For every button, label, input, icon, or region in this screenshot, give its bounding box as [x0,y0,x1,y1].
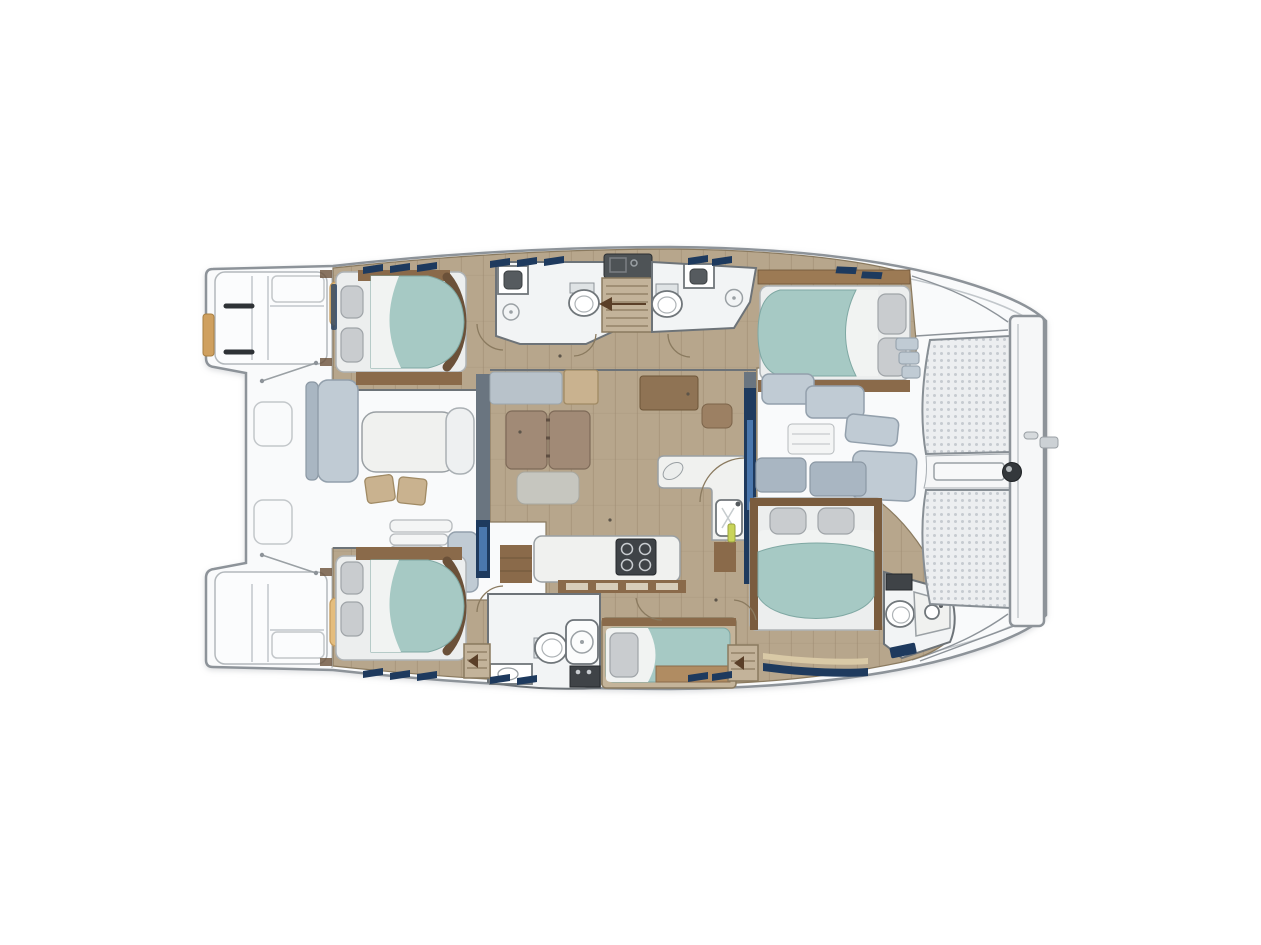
appliance [570,666,600,687]
galley-bottle [728,524,735,542]
port-aft-cabin [331,270,466,385]
cockpit-bench [318,380,358,482]
port-stairs [599,278,652,332]
floor-plan-canvas: Catamaran yacht accommodation plan — top… [0,0,1261,945]
port-aft-head [496,262,612,344]
cockpit-bench-backrest [306,382,318,480]
bed-pillow [770,508,806,534]
double-bed-mattress [758,543,874,619]
galley-up-unit [604,254,652,278]
trampoline-net-panel [923,336,1010,454]
bow-beam [1003,316,1059,626]
bed-pillow [341,562,363,594]
beam-cleat [1024,432,1038,439]
starboard-transom [215,568,332,666]
salon-ottoman [517,472,579,504]
catamaran-floor-plan: Catamaran yacht accommodation plan — top… [0,0,1261,945]
bed-pillow [341,602,363,636]
swim-ladder [203,314,214,356]
windlass [1003,463,1022,482]
cockpit-side-seat [446,408,474,474]
bed-pillow [341,328,363,362]
double-bed-mattress [758,290,856,376]
bed-pillow [818,508,854,534]
galley-island [534,536,680,582]
galley-cabinet [714,542,736,572]
stbd-fwd-cabin [750,498,882,630]
trampoline [923,336,1010,608]
aft-salon-door [476,374,490,578]
appliance [886,574,912,590]
head-sink [925,605,939,619]
salon-settee [490,372,562,404]
cooktop [616,539,656,575]
forestay-fitting [1040,437,1058,448]
salon-cabinet [564,370,598,404]
bed-pillow [341,286,363,318]
bed-pillow [878,294,906,334]
cockpit-table [362,412,456,472]
trampoline-net-panel [923,490,1010,608]
berth-pillow [610,633,638,677]
stbd-aft-cabin [336,547,466,660]
